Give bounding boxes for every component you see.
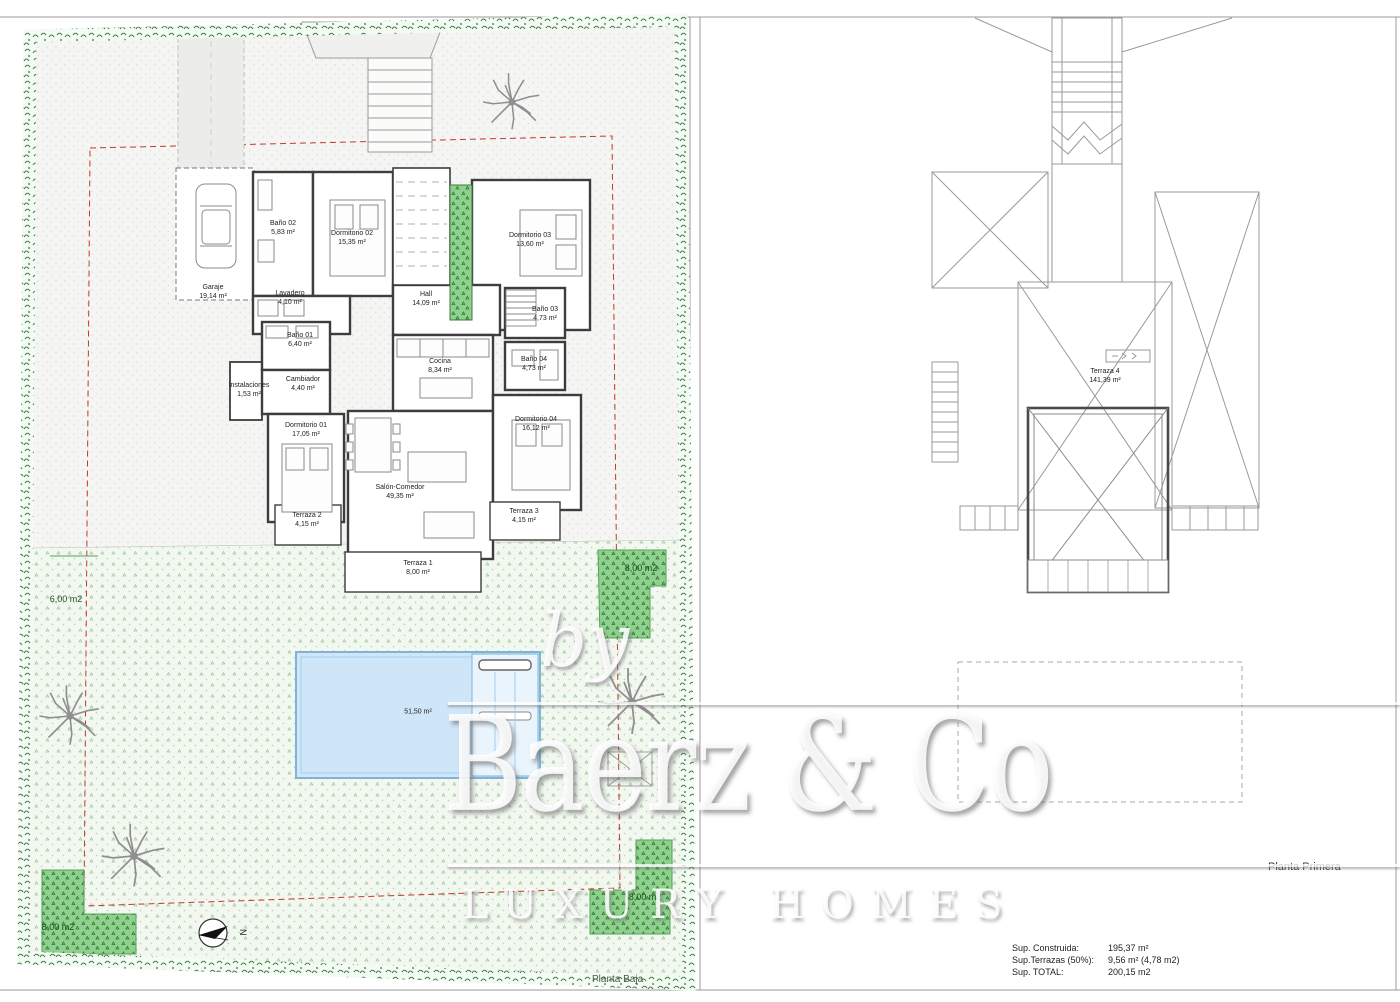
driveway (178, 26, 244, 168)
summary-row: Sup. TOTAL:200,15 m2 (1012, 966, 1180, 978)
label-terraza2: Terraza 24,15 m² (292, 511, 321, 529)
plan-drawing: N (0, 0, 1400, 1002)
roof-side-stairs (932, 362, 958, 462)
plan-title-ground: Planta Baja (592, 974, 643, 985)
summary-row: Sup.Terrazas (50%):9,56 m² (4,78 m2) (1012, 954, 1180, 966)
garden-label-bottom-right: 8,00 m2 (629, 892, 662, 902)
first-floor-roof-plan (932, 18, 1259, 802)
label-dorm02: Dormitorio 0215,35 m² (331, 229, 373, 247)
compass-north-label: N (238, 929, 248, 936)
architectural-sheet: N (0, 0, 1400, 1002)
label-terraza3: Terraza 34,15 m² (509, 507, 538, 525)
garden-label-right: 8,00 m2 (625, 563, 658, 573)
stair-tower (1052, 18, 1122, 282)
label-instalaciones: Instalaciones1,53 m² (229, 381, 270, 399)
label-bano04: Baño 044,73 m² (521, 355, 547, 373)
label-dorm03: Dormitorio 0313,60 m² (509, 231, 551, 249)
label-bano02: Baño 025,83 m² (270, 219, 296, 237)
ground-floor-site-plan: N (24, 20, 689, 984)
label-terraza4: Terraza 4141,39 m² (1089, 367, 1121, 385)
label-hall: Hall14,09 m² (412, 290, 440, 308)
label-cambiador: Cambiador4,40 m² (286, 375, 320, 393)
roof-vent (1106, 350, 1150, 362)
label-bano01: Baño 016,40 m² (287, 331, 313, 349)
roof-panels (932, 172, 1259, 510)
label-dorm01: Dormitorio 0117,05 m² (285, 421, 327, 439)
label-salon: Salón-Comedor49,35 m² (375, 483, 424, 501)
pool-outline-dashed (958, 662, 1242, 802)
label-pool-area: 51,50 m² (404, 707, 432, 716)
compass-icon (199, 919, 228, 947)
garden-label-bottom-left: 8,00 m2 (42, 922, 75, 932)
area-summary: Sup. Construida:195,37 m² Sup.Terrazas (… (1012, 942, 1180, 978)
label-bano03: Baño 034,73 m² (532, 305, 558, 323)
plan-title-first: Planta Primera (1268, 861, 1341, 873)
label-garaje: Garaje19,14 m² (199, 283, 227, 301)
skylight (1028, 408, 1168, 592)
garden-label-left: 6,00 m2 (50, 594, 83, 604)
label-terraza1: Terraza 18,00 m² (403, 559, 432, 577)
label-lavadero: Lavadero4,10 m² (275, 289, 304, 307)
label-dorm04: Dormitorio 0416,12 m² (515, 415, 557, 433)
planter-strip (450, 185, 472, 320)
label-cocina: Cocina8,34 m² (428, 357, 452, 375)
summary-row: Sup. Construida:195,37 m² (1012, 942, 1180, 954)
